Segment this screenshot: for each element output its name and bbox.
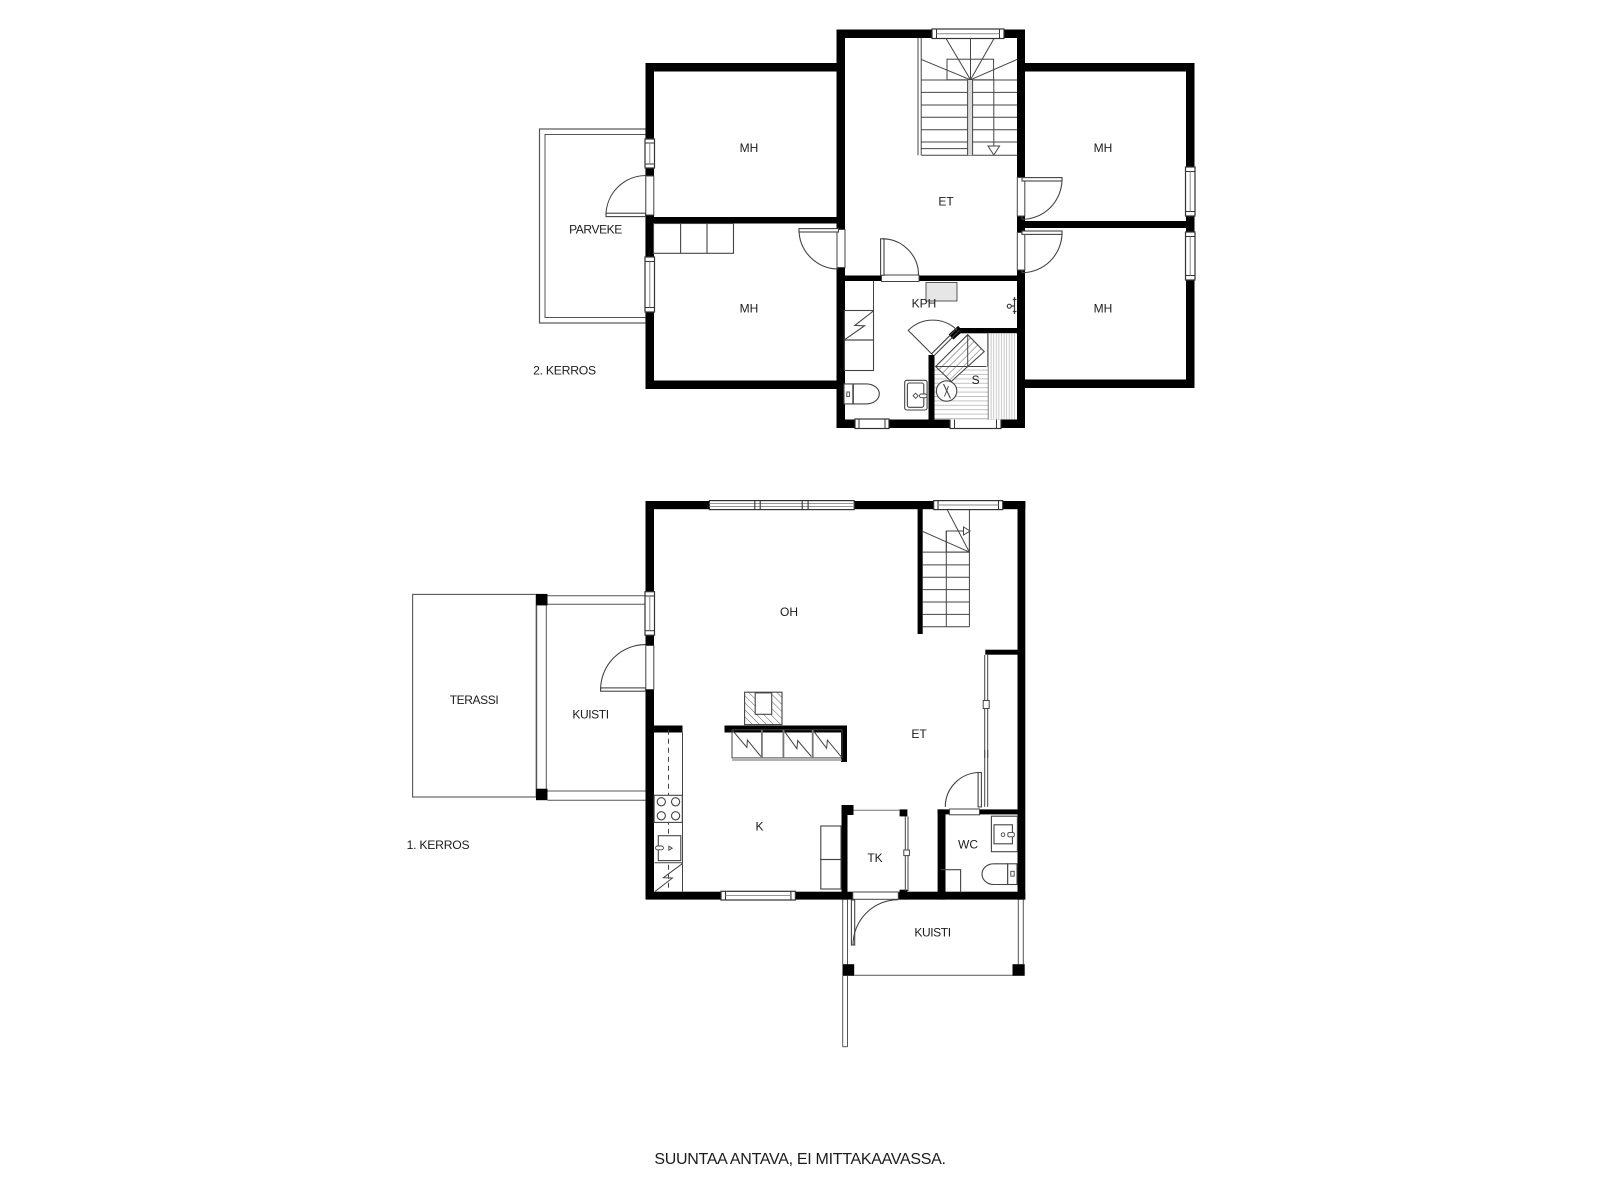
svg-text:MH: MH (1094, 141, 1113, 155)
svg-text:1. KERROS: 1. KERROS (407, 838, 470, 852)
svg-text:K: K (755, 819, 763, 833)
svg-text:S: S (972, 373, 980, 387)
svg-text:MH: MH (740, 302, 759, 316)
svg-text:MH: MH (740, 141, 759, 155)
svg-text:MH: MH (1094, 302, 1113, 316)
svg-text:TK: TK (867, 851, 882, 865)
svg-text:SUUNTAA ANTAVA, EI MITTAKAAVAS: SUUNTAA ANTAVA, EI MITTAKAAVASSA. (654, 1151, 945, 1168)
svg-text:KUISTI: KUISTI (572, 707, 608, 721)
svg-text:KPH: KPH (912, 297, 937, 311)
svg-text:KUISTI: KUISTI (914, 926, 950, 940)
svg-text:WC: WC (958, 838, 978, 852)
svg-text:ET: ET (938, 195, 954, 209)
svg-text:2. KERROS: 2. KERROS (533, 363, 596, 377)
svg-text:TERASSI: TERASSI (450, 693, 499, 707)
svg-text:PARVEKE: PARVEKE (569, 223, 622, 237)
svg-text:OH: OH (780, 605, 798, 619)
svg-text:ET: ET (911, 727, 927, 741)
